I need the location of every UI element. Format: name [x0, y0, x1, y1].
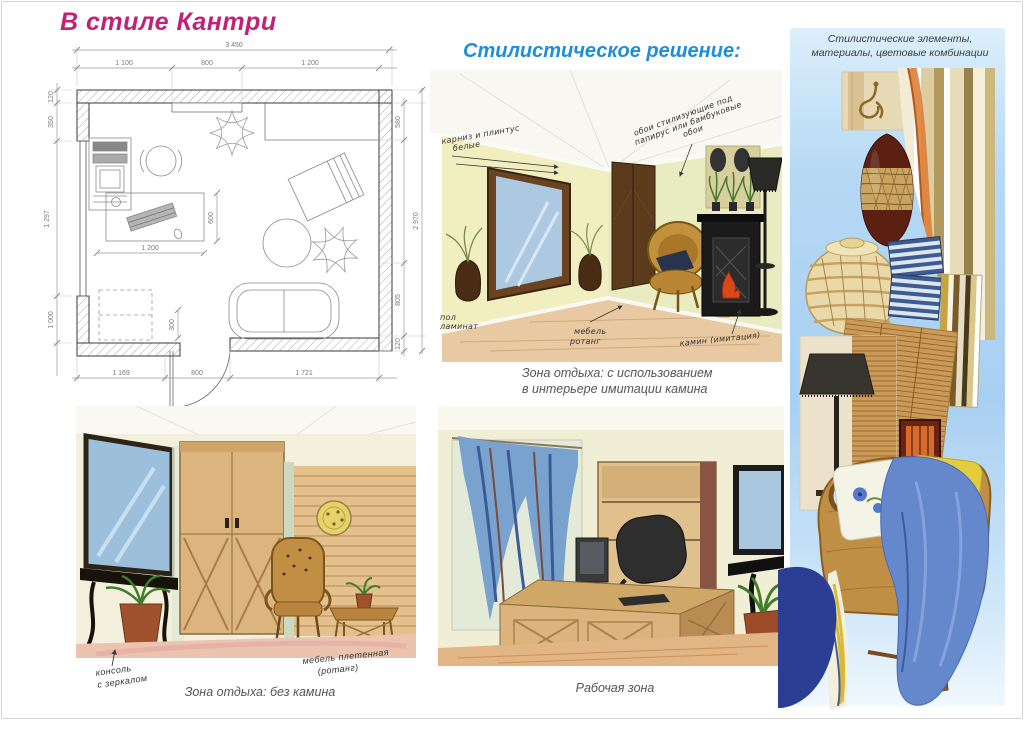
page-title: В стиле Кантри: [60, 8, 277, 37]
svg-text:ламинат: ламинат: [439, 322, 478, 331]
sketch1-wardrobe: [612, 162, 655, 290]
dim-top-c: 1 200: [301, 60, 319, 67]
floor-plan: 3 450 1 100 800 1 200 120 350 1 297 1 00…: [32, 38, 432, 408]
sketch-lounge-no-fireplace: [76, 406, 416, 658]
plan-furniture: [89, 102, 379, 340]
palette-caption-line: материалы, цветовые комбинации: [798, 47, 1002, 61]
dim-bottom-c: 1 721: [295, 370, 313, 377]
dim-right-a: 580: [395, 116, 402, 128]
plan-wardrobe-niche: [265, 103, 379, 140]
dim-total-width: 3 450: [225, 42, 243, 49]
svg-text:мебель: мебель: [574, 327, 606, 336]
dim-right-c: 805: [395, 294, 402, 306]
striped-boxes-photo: [888, 237, 943, 321]
plan-walls: [77, 90, 392, 356]
materials-panel: [790, 28, 1005, 708]
dim-inner-c: 300: [169, 319, 176, 331]
sketch1-fireplace: [697, 214, 765, 316]
dim-right-b: 2 970: [413, 212, 420, 230]
dim-left-d: 1 000: [48, 311, 55, 329]
dim-inner-b: 1 200: [141, 245, 159, 252]
dim-left-b: 350: [48, 116, 55, 128]
plan-top-niche: [172, 103, 242, 112]
curtain-hook-photo: [842, 72, 906, 130]
caption-lounge-fireplace: Зона отдыха: с использованием в интерьер…: [522, 366, 752, 397]
caption-work-zone: Рабочая зона: [545, 681, 685, 697]
dim-inner-a: 600: [208, 212, 215, 224]
dim-bottom-b: 800: [191, 370, 203, 377]
sketch3-right-window: [736, 468, 784, 552]
lamp-shade: [800, 354, 874, 394]
sketch1-mirror: [488, 168, 570, 300]
svg-text:пол: пол: [440, 313, 456, 322]
svg-text:ротанг: ротанг: [569, 337, 601, 346]
caption-line: в интерьере имитации камина: [522, 382, 752, 398]
dim-bottom-a: 1 169: [112, 370, 130, 377]
sketch-lounge-fireplace: карниз и плинтус белые обои стилизующие …: [430, 70, 782, 362]
palette-caption: Стилистические элементы, материалы, цвет…: [798, 33, 1002, 60]
plan-window: [77, 141, 89, 296]
dim-right-d: 120: [395, 338, 402, 350]
dim-left-a: 120: [48, 91, 55, 103]
caption-line: Зона отдыха: с использованием: [522, 366, 752, 382]
dim-top-a: 1 100: [115, 60, 133, 67]
sketch-work-zone: [438, 406, 784, 666]
palette-caption-line: Стилистические элементы,: [798, 33, 1002, 47]
caption-lounge-no-fireplace: Зона отдыха: без камина: [150, 685, 370, 701]
dim-left-c: 1 297: [44, 210, 51, 228]
note-console-arrow: [106, 646, 122, 668]
design-board-page: В стиле Кантри Стилистическое решение:: [0, 0, 1024, 729]
section-title-stylistic-solution: Стилистическое решение:: [463, 40, 741, 63]
sketch2-window: [86, 436, 172, 574]
sketch2-wall-plate: [317, 501, 351, 535]
dim-top-b: 800: [201, 60, 213, 67]
